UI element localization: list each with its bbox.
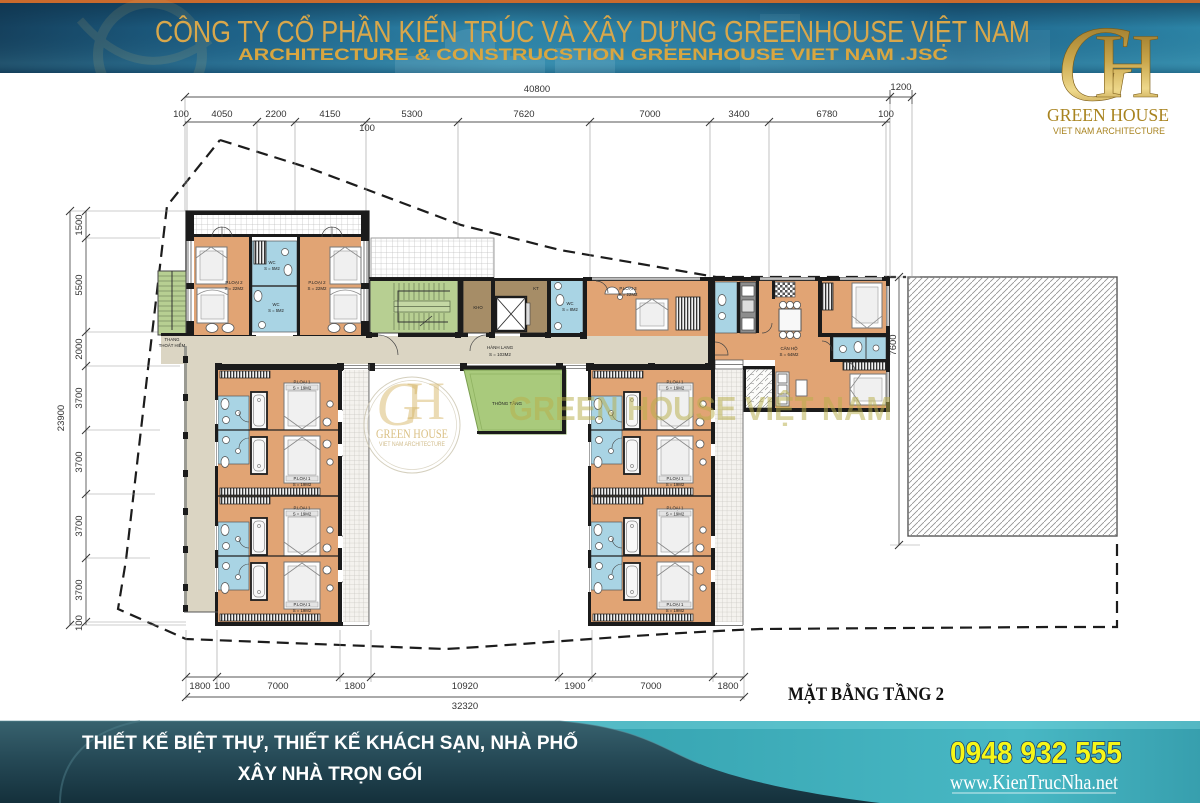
svg-text:100: 100 — [173, 109, 189, 120]
svg-text:100: 100 — [214, 681, 230, 692]
svg-text:P.LOẠI 3: P.LOẠI 3 — [619, 286, 637, 291]
svg-text:1800: 1800 — [717, 681, 738, 692]
svg-text:ARCHITECTURE & CONSTRUCSTION G: ARCHITECTURE & CONSTRUCSTION GREENHOUSE … — [238, 45, 948, 64]
svg-text:HÀNH LANG: HÀNH LANG — [487, 344, 514, 350]
svg-text:3700: 3700 — [74, 515, 85, 536]
svg-text:100: 100 — [359, 123, 375, 134]
svg-text:1200: 1200 — [890, 82, 911, 93]
svg-text:H: H — [1094, 15, 1160, 117]
svg-text:3700: 3700 — [74, 387, 85, 408]
svg-text:S = 5M2: S = 5M2 — [268, 308, 284, 313]
svg-text:10920: 10920 — [452, 681, 478, 692]
svg-text:H: H — [406, 371, 445, 431]
svg-text:VIET NAM ARCHITECTURE: VIET NAM ARCHITECTURE — [1053, 126, 1165, 137]
svg-text:5500: 5500 — [74, 274, 85, 295]
svg-text:32320: 32320 — [452, 701, 478, 712]
svg-text:2000: 2000 — [74, 338, 85, 359]
svg-text:1900: 1900 — [564, 681, 585, 692]
svg-text:3400: 3400 — [728, 109, 749, 120]
svg-text:P.LOẠI 2: P.LOẠI 2 — [225, 280, 243, 285]
svg-text:WC: WC — [269, 260, 276, 265]
svg-text:S = 22M2: S = 22M2 — [225, 286, 244, 291]
svg-text:23900: 23900 — [56, 405, 67, 431]
svg-text:CÔNG TY CỔ PHẦN KIẾN TRÚC VÀ X: CÔNG TY CỔ PHẦN KIẾN TRÚC VÀ XÂY DỰNG GR… — [155, 13, 1030, 49]
svg-text:1500: 1500 — [74, 214, 85, 235]
svg-text:WC: WC — [567, 301, 574, 306]
svg-text:4150: 4150 — [319, 109, 340, 120]
svg-text:1800: 1800 — [344, 681, 365, 692]
svg-text:5300: 5300 — [401, 109, 422, 120]
svg-text:MẶT BẰNG TẦNG 2: MẶT BẰNG TẦNG 2 — [788, 683, 944, 705]
svg-text:CĂN HỘ: CĂN HỘ — [780, 346, 798, 351]
svg-text:KT: KT — [533, 286, 539, 291]
svg-text:GREEN HOUSE: GREEN HOUSE — [1047, 105, 1169, 125]
svg-text:www.KienTrucNha.net: www.KienTrucNha.net — [950, 770, 1118, 794]
svg-text:THOÁT HIỂM: THOÁT HIỂM — [159, 343, 186, 348]
svg-text:3700: 3700 — [74, 579, 85, 600]
svg-text:6780: 6780 — [816, 109, 837, 120]
svg-text:XÂY NHÀ TRỌN GÓI: XÂY NHÀ TRỌN GÓI — [238, 763, 422, 785]
svg-text:7000: 7000 — [267, 681, 288, 692]
svg-text:S = 5M2: S = 5M2 — [264, 266, 280, 271]
svg-text:S = 103M2: S = 103M2 — [489, 352, 511, 357]
svg-text:100: 100 — [878, 109, 894, 120]
svg-text:S = 64M2: S = 64M2 — [780, 352, 799, 357]
svg-text:S = 22M2: S = 22M2 — [308, 286, 327, 291]
svg-text:S = 8M2: S = 8M2 — [562, 307, 578, 312]
svg-text:0948 932 555: 0948 932 555 — [950, 735, 1122, 770]
svg-text:3700: 3700 — [74, 451, 85, 472]
svg-text:7000: 7000 — [639, 109, 660, 120]
svg-text:1800: 1800 — [189, 681, 210, 692]
svg-text:KHO: KHO — [473, 305, 483, 310]
svg-text:S = 22M2: S = 22M2 — [619, 292, 638, 297]
svg-text:100: 100 — [74, 615, 85, 631]
svg-text:WC: WC — [273, 302, 280, 307]
svg-text:2200: 2200 — [265, 109, 286, 120]
svg-text:P.LOẠI 2: P.LOẠI 2 — [308, 280, 326, 285]
svg-text:GREEN HOUSE: GREEN HOUSE — [376, 426, 448, 441]
svg-text:7000: 7000 — [640, 681, 661, 692]
svg-text:40800: 40800 — [524, 84, 550, 95]
svg-text:VIET NAM ARCHITECTURE: VIET NAM ARCHITECTURE — [379, 441, 446, 448]
svg-text:THIẾT KẾ BIỆT THỰ, THIẾT KẾ KH: THIẾT KẾ BIỆT THỰ, THIẾT KẾ KHÁCH SẠN, N… — [82, 732, 578, 754]
svg-text:4050: 4050 — [211, 109, 232, 120]
svg-text:THANG: THANG — [164, 337, 180, 342]
svg-text:GREEN HOUSE VIỆT NAM: GREEN HOUSE VIỆT NAM — [509, 390, 892, 427]
svg-text:7620: 7620 — [513, 109, 534, 120]
